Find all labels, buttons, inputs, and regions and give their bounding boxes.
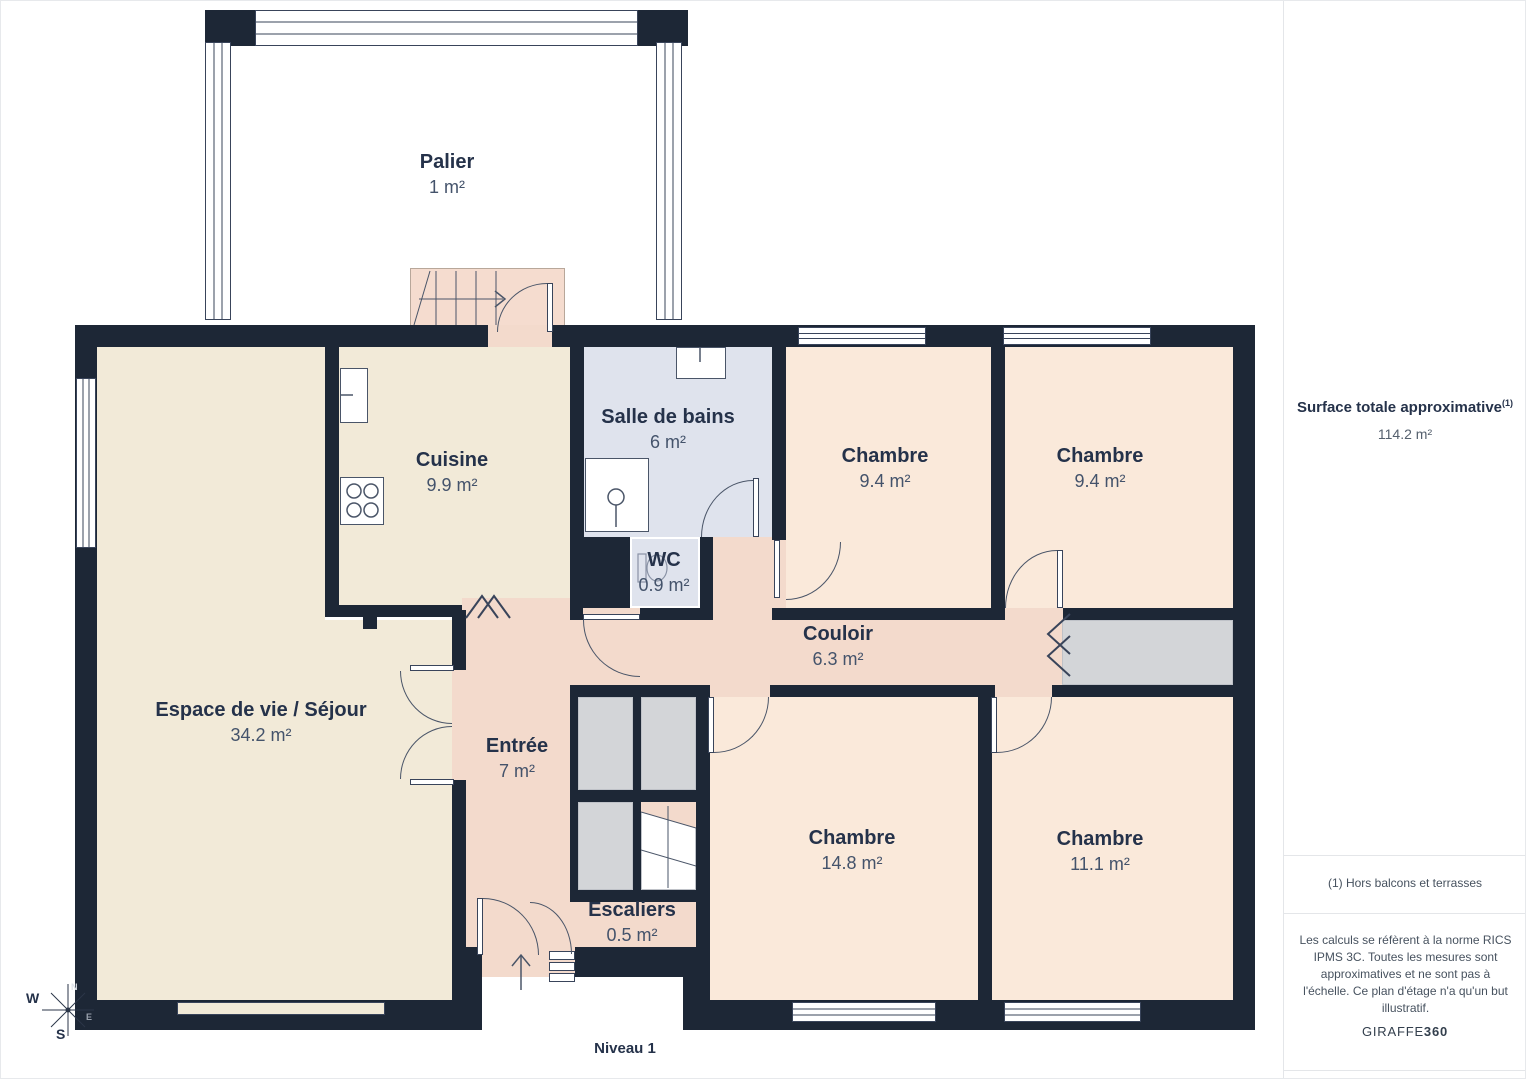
room-name: Palier [420, 150, 474, 175]
room-area: 9.9 m² [416, 473, 488, 498]
room-area: 34.2 m² [155, 723, 366, 748]
closet-floor [578, 802, 633, 890]
interior-stairs-icon [641, 802, 696, 890]
wall [772, 608, 1005, 620]
room-label-entree: Entrée 7 m² [486, 734, 548, 784]
divider [1284, 855, 1526, 856]
window [1003, 327, 1151, 345]
room-label-wc: WC 0.9 m² [638, 548, 689, 598]
disclaimer-text: Les calculs se réfèrent à la norme RICS … [1298, 932, 1513, 1017]
compass-north-label: N [71, 982, 78, 992]
room-name: Chambre [1057, 444, 1144, 469]
wall [575, 947, 683, 977]
entry-step [549, 973, 575, 982]
info-panel: Surface totale approximative(1) 114.2 m²… [1283, 0, 1526, 1079]
wall [570, 685, 696, 697]
room-area: 9.4 m² [1057, 469, 1144, 494]
room-name: Chambre [842, 444, 929, 469]
brand-suffix: 360 [1424, 1024, 1448, 1039]
compass-south-label: S [56, 1026, 65, 1042]
entry-arrow-icon [508, 950, 534, 992]
bathroom-sink-icon [676, 347, 726, 379]
wall [325, 605, 462, 617]
room-name: Couloir [803, 622, 873, 647]
wall [452, 780, 466, 1000]
wall [700, 537, 713, 608]
room-area: 9.4 m² [842, 469, 929, 494]
room-name: Cuisine [416, 448, 488, 473]
door-leaf [753, 478, 759, 537]
room-label-sejour: Espace de vie / Séjour 34.2 m² [155, 698, 366, 748]
room-label-chambre-sud-ouest: Chambre 14.8 m² [809, 826, 896, 876]
room-label-salle-de-bains: Salle de bains 6 m² [601, 405, 734, 455]
wall-break-icon [1040, 608, 1076, 682]
level-label: Niveau 1 [594, 1040, 656, 1057]
wall [570, 608, 583, 620]
room-area: 6 m² [601, 430, 734, 455]
door-leaf [410, 779, 454, 785]
doorway-floor [710, 685, 770, 697]
total-area-title-text: Surface totale approximative [1297, 399, 1502, 416]
total-area-title: Surface totale approximative(1) [1284, 398, 1526, 416]
wall [991, 347, 1005, 608]
doorway-floor [452, 670, 466, 780]
hall-connector-floor [713, 537, 772, 620]
window [792, 1002, 936, 1022]
window [1004, 1002, 1141, 1022]
window [798, 327, 926, 345]
stove-icon [340, 477, 384, 525]
room-area: 7 m² [486, 759, 548, 784]
room-area: 1 m² [420, 175, 474, 200]
divider [1284, 1070, 1526, 1071]
room-name: Escaliers [588, 898, 676, 923]
room-sejour-floor [97, 620, 452, 1000]
shower-icon [585, 458, 649, 532]
sliding-door [177, 1002, 385, 1015]
divider [1284, 913, 1526, 914]
room-area: 14.8 m² [809, 851, 896, 876]
closet-floor [1062, 620, 1233, 685]
floorplan-page: W S N E Palier 1 m² Cuisine 9.9 m² Salle… [0, 0, 1526, 1079]
closet-floor [578, 697, 633, 790]
window [205, 42, 231, 320]
room-area: 0.9 m² [638, 573, 689, 598]
room-name: Chambre [809, 826, 896, 851]
room-area: 0.5 m² [588, 923, 676, 948]
doorway-floor [995, 685, 1052, 697]
brand-name: GIRAFFE [1362, 1024, 1424, 1039]
door-leaf [547, 283, 553, 332]
room-name: Chambre [1057, 827, 1144, 852]
closet-floor [641, 697, 696, 790]
wall [570, 537, 630, 608]
wall [770, 685, 995, 697]
window [255, 10, 638, 46]
brand-logo: GIRAFFE360 [1284, 1024, 1526, 1039]
wall [1233, 325, 1255, 1030]
room-label-chambre-nord-ouest: Chambre 9.4 m² [842, 444, 929, 494]
wall [640, 608, 713, 620]
window [76, 378, 96, 548]
entry-step [549, 962, 575, 971]
wall [638, 10, 688, 46]
room-label-couloir: Couloir 6.3 m² [803, 622, 873, 672]
window [656, 42, 682, 320]
door-leaf [1057, 550, 1063, 608]
room-sejour-floor [97, 347, 325, 620]
room-area: 6.3 m² [803, 647, 873, 672]
room-label-chambre-sud-est: Chambre 11.1 m² [1057, 827, 1144, 877]
total-area-value: 114.2 m² [1284, 426, 1526, 442]
room-label-chambre-nord-est: Chambre 9.4 m² [1057, 444, 1144, 494]
room-name: Entrée [486, 734, 548, 759]
wall [772, 347, 786, 540]
compass-west-label: W [26, 990, 39, 1006]
kitchen-sink-icon [340, 368, 368, 423]
compass-icon [38, 982, 102, 1046]
wall [683, 947, 696, 1000]
room-name: Espace de vie / Séjour [155, 698, 366, 723]
wall-break-icon [460, 592, 516, 622]
compass-east-label: E [86, 1012, 92, 1022]
wall [205, 10, 255, 46]
room-name: Salle de bains [601, 405, 734, 430]
wall [1063, 608, 1233, 620]
wall [633, 697, 641, 890]
room-label-escaliers: Escaliers 0.5 m² [588, 898, 676, 948]
wall [570, 347, 584, 537]
room-name: WC [638, 548, 689, 573]
footnote-text: (1) Hors balcons et terrasses [1284, 876, 1526, 890]
footnote-marker: (1) [1502, 398, 1513, 408]
wall [363, 617, 377, 629]
room-area: 11.1 m² [1057, 852, 1144, 877]
wall [1052, 685, 1233, 697]
room-label-palier: Palier 1 m² [420, 150, 474, 200]
room-label-cuisine: Cuisine 9.9 m² [416, 448, 488, 498]
door-leaf [774, 540, 780, 598]
wall [325, 347, 339, 605]
wall [978, 697, 992, 1000]
